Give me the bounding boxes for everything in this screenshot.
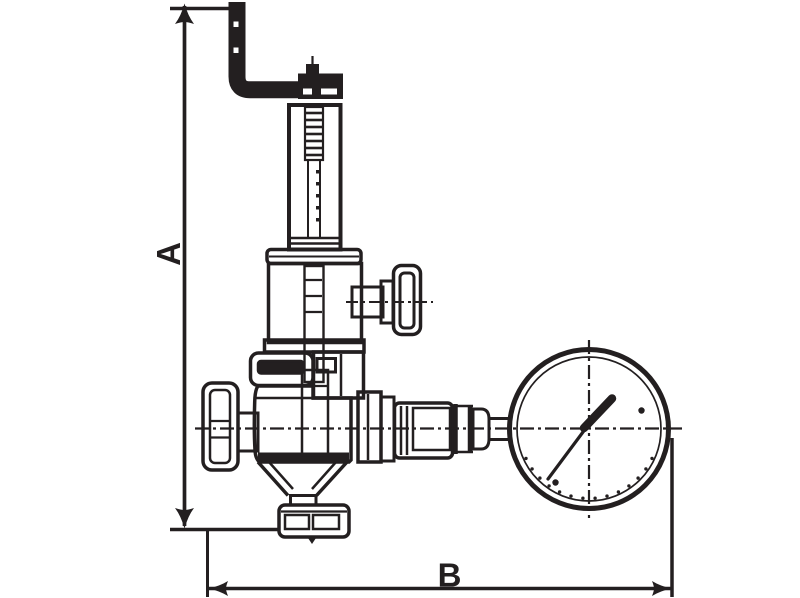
svg-text:B: B <box>438 557 462 594</box>
svg-text:A: A <box>150 242 187 266</box>
